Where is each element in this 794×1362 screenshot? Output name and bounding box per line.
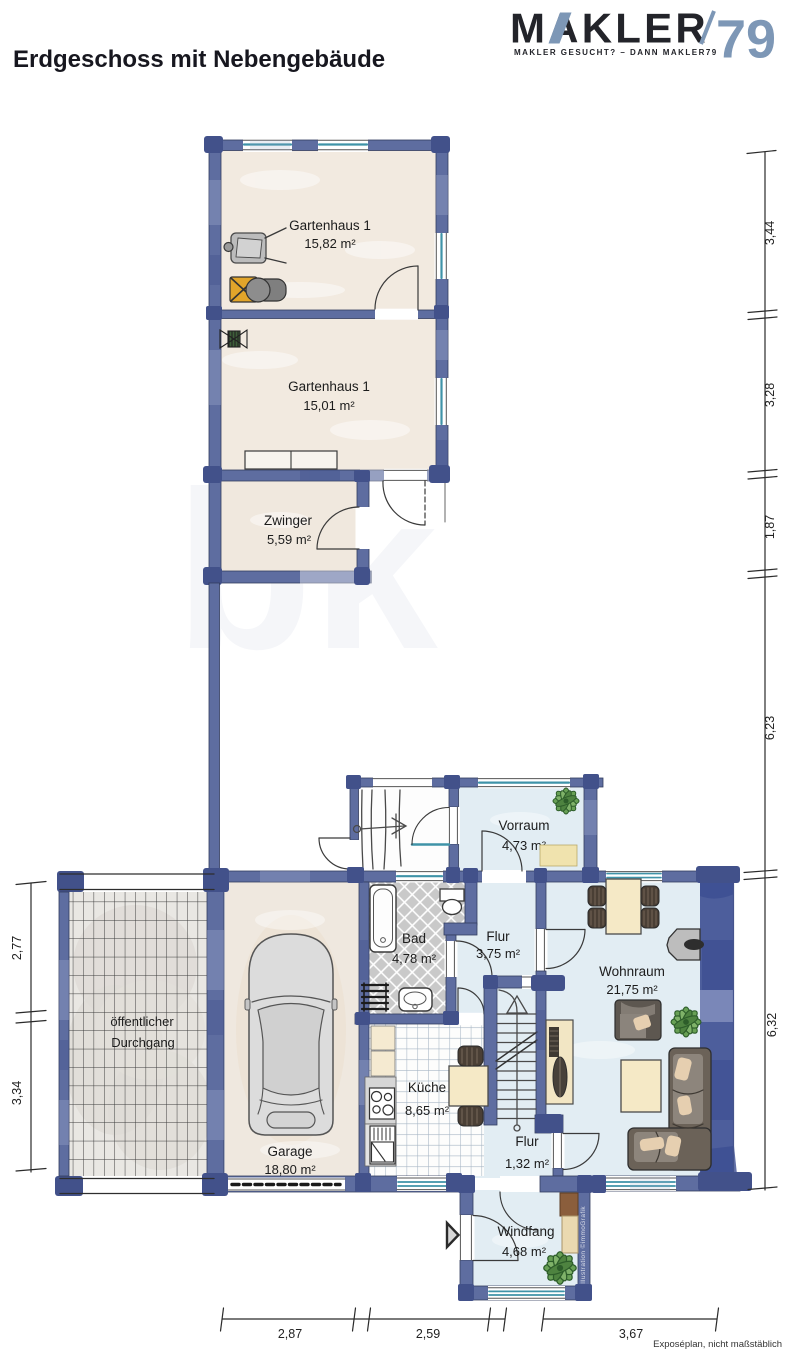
svg-text:Wohnraum: Wohnraum bbox=[599, 964, 665, 979]
svg-text:2,59: 2,59 bbox=[416, 1327, 440, 1341]
svg-text:MAKLER: MAKLER bbox=[510, 5, 709, 52]
svg-text:3,67: 3,67 bbox=[619, 1327, 643, 1341]
svg-text:Illustration ©immoGrafik: Illustration ©immoGrafik bbox=[579, 1206, 587, 1285]
svg-text:21,75 m²: 21,75 m² bbox=[606, 982, 658, 997]
svg-text:18,80 m²: 18,80 m² bbox=[264, 1162, 316, 1177]
svg-text:Durchgang: Durchgang bbox=[111, 1035, 175, 1050]
svg-text:Exposéplan, nicht maßstäblich: Exposéplan, nicht maßstäblich bbox=[653, 1339, 782, 1350]
svg-text:79: 79 bbox=[716, 10, 776, 70]
svg-text:Flur: Flur bbox=[486, 929, 510, 944]
svg-text:Erdgeschoss mit Nebengebäude: Erdgeschoss mit Nebengebäude bbox=[13, 46, 385, 73]
svg-text:8,65 m²: 8,65 m² bbox=[405, 1103, 450, 1118]
svg-text:Gartenhaus 1: Gartenhaus 1 bbox=[289, 218, 371, 233]
svg-text:6,23: 6,23 bbox=[763, 716, 777, 740]
svg-text:15,82 m²: 15,82 m² bbox=[304, 236, 356, 251]
svg-text:Bad: Bad bbox=[402, 931, 426, 946]
svg-text:3,44: 3,44 bbox=[763, 221, 777, 245]
svg-text:15,01 m²: 15,01 m² bbox=[303, 398, 355, 413]
svg-text:1,87: 1,87 bbox=[763, 515, 777, 539]
svg-text:Garage: Garage bbox=[267, 1144, 312, 1159]
svg-text:2,77: 2,77 bbox=[10, 936, 24, 960]
svg-text:öffentlicher: öffentlicher bbox=[110, 1014, 174, 1029]
svg-text:4,78 m²: 4,78 m² bbox=[392, 951, 437, 966]
svg-text:Windfang: Windfang bbox=[497, 1224, 554, 1239]
svg-text:Flur: Flur bbox=[515, 1134, 539, 1149]
svg-text:3,28: 3,28 bbox=[763, 383, 777, 407]
svg-text:Küche: Küche bbox=[408, 1080, 446, 1095]
svg-text:1,32 m²: 1,32 m² bbox=[505, 1156, 550, 1171]
svg-text:3,75 m²: 3,75 m² bbox=[476, 946, 521, 961]
svg-text:MAKLER GESUCHT? – DANN MAKLER7: MAKLER GESUCHT? – DANN MAKLER79 bbox=[514, 48, 718, 57]
svg-text:6,32: 6,32 bbox=[765, 1013, 779, 1037]
svg-text:5,59 m²: 5,59 m² bbox=[267, 532, 312, 547]
svg-text:3,34: 3,34 bbox=[10, 1081, 24, 1105]
svg-text:2,87: 2,87 bbox=[278, 1327, 302, 1341]
svg-text:Vorraum: Vorraum bbox=[498, 818, 549, 833]
svg-text:Gartenhaus 1: Gartenhaus 1 bbox=[288, 379, 370, 394]
svg-text:4,68 m²: 4,68 m² bbox=[502, 1244, 547, 1259]
svg-text:Zwinger: Zwinger bbox=[264, 513, 313, 528]
